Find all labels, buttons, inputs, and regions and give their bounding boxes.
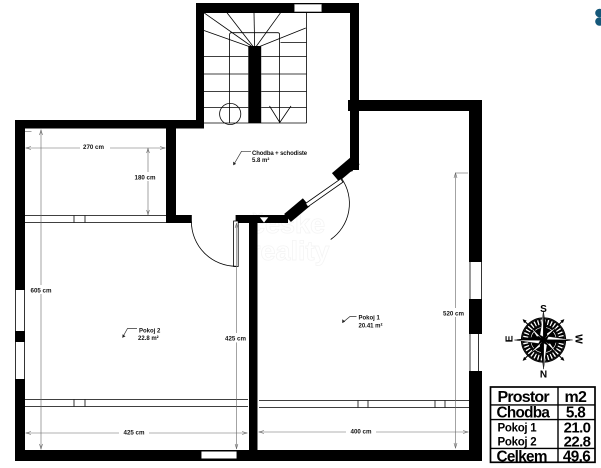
svg-text:Pokoj 1: Pokoj 1 — [359, 316, 381, 322]
svg-text:20.41 m²: 20.41 m² — [359, 323, 383, 330]
svg-text:Prostor: Prostor — [498, 389, 550, 406]
svg-text:reality: reality — [250, 236, 330, 266]
svg-text:180 cm: 180 cm — [135, 175, 156, 182]
svg-text:Pokoj 1: Pokoj 1 — [498, 423, 538, 435]
svg-text:m2: m2 — [565, 389, 587, 406]
svg-text:400 cm: 400 cm — [351, 429, 372, 436]
svg-text:Pokoj 2: Pokoj 2 — [498, 436, 537, 448]
svg-text:520 cm: 520 cm — [443, 311, 464, 318]
svg-text:Celkem: Celkem — [497, 448, 547, 465]
svg-text:N: N — [540, 369, 547, 380]
svg-text:605 cm: 605 cm — [31, 288, 52, 295]
svg-text:5.8 m²: 5.8 m² — [252, 157, 269, 164]
svg-text:425 cm: 425 cm — [225, 336, 246, 343]
svg-text:Chodba: Chodba — [497, 405, 551, 422]
svg-text:S: S — [540, 304, 547, 315]
svg-text:270 cm: 270 cm — [83, 144, 104, 151]
svg-text:E: E — [504, 335, 515, 342]
svg-text:W: W — [573, 334, 584, 344]
svg-text:425 cm: 425 cm — [124, 430, 145, 437]
svg-text:Pokoj 2: Pokoj 2 — [139, 329, 161, 335]
svg-text:49.6: 49.6 — [563, 448, 590, 465]
svg-text:22.8 m²: 22.8 m² — [138, 335, 159, 342]
svg-text:Chodba + schodiste: Chodba + schodiste — [252, 151, 308, 157]
